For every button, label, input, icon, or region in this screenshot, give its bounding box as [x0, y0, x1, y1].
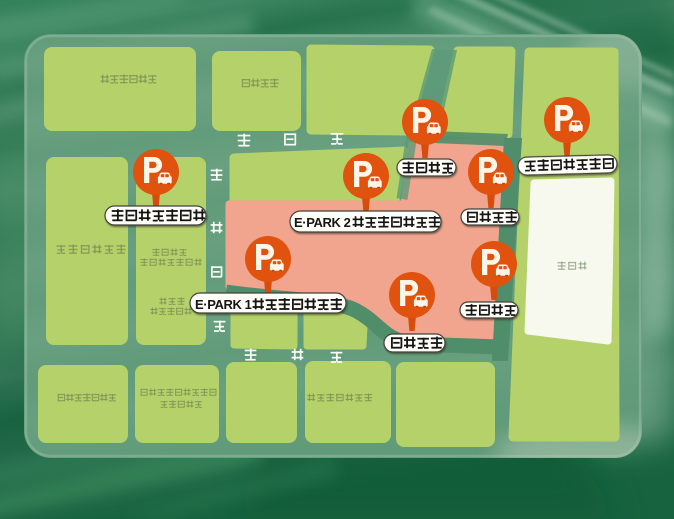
svg-text:E·PARK 2: E·PARK 2	[294, 215, 351, 230]
svg-text:E·PARK 1: E·PARK 1	[195, 297, 252, 312]
